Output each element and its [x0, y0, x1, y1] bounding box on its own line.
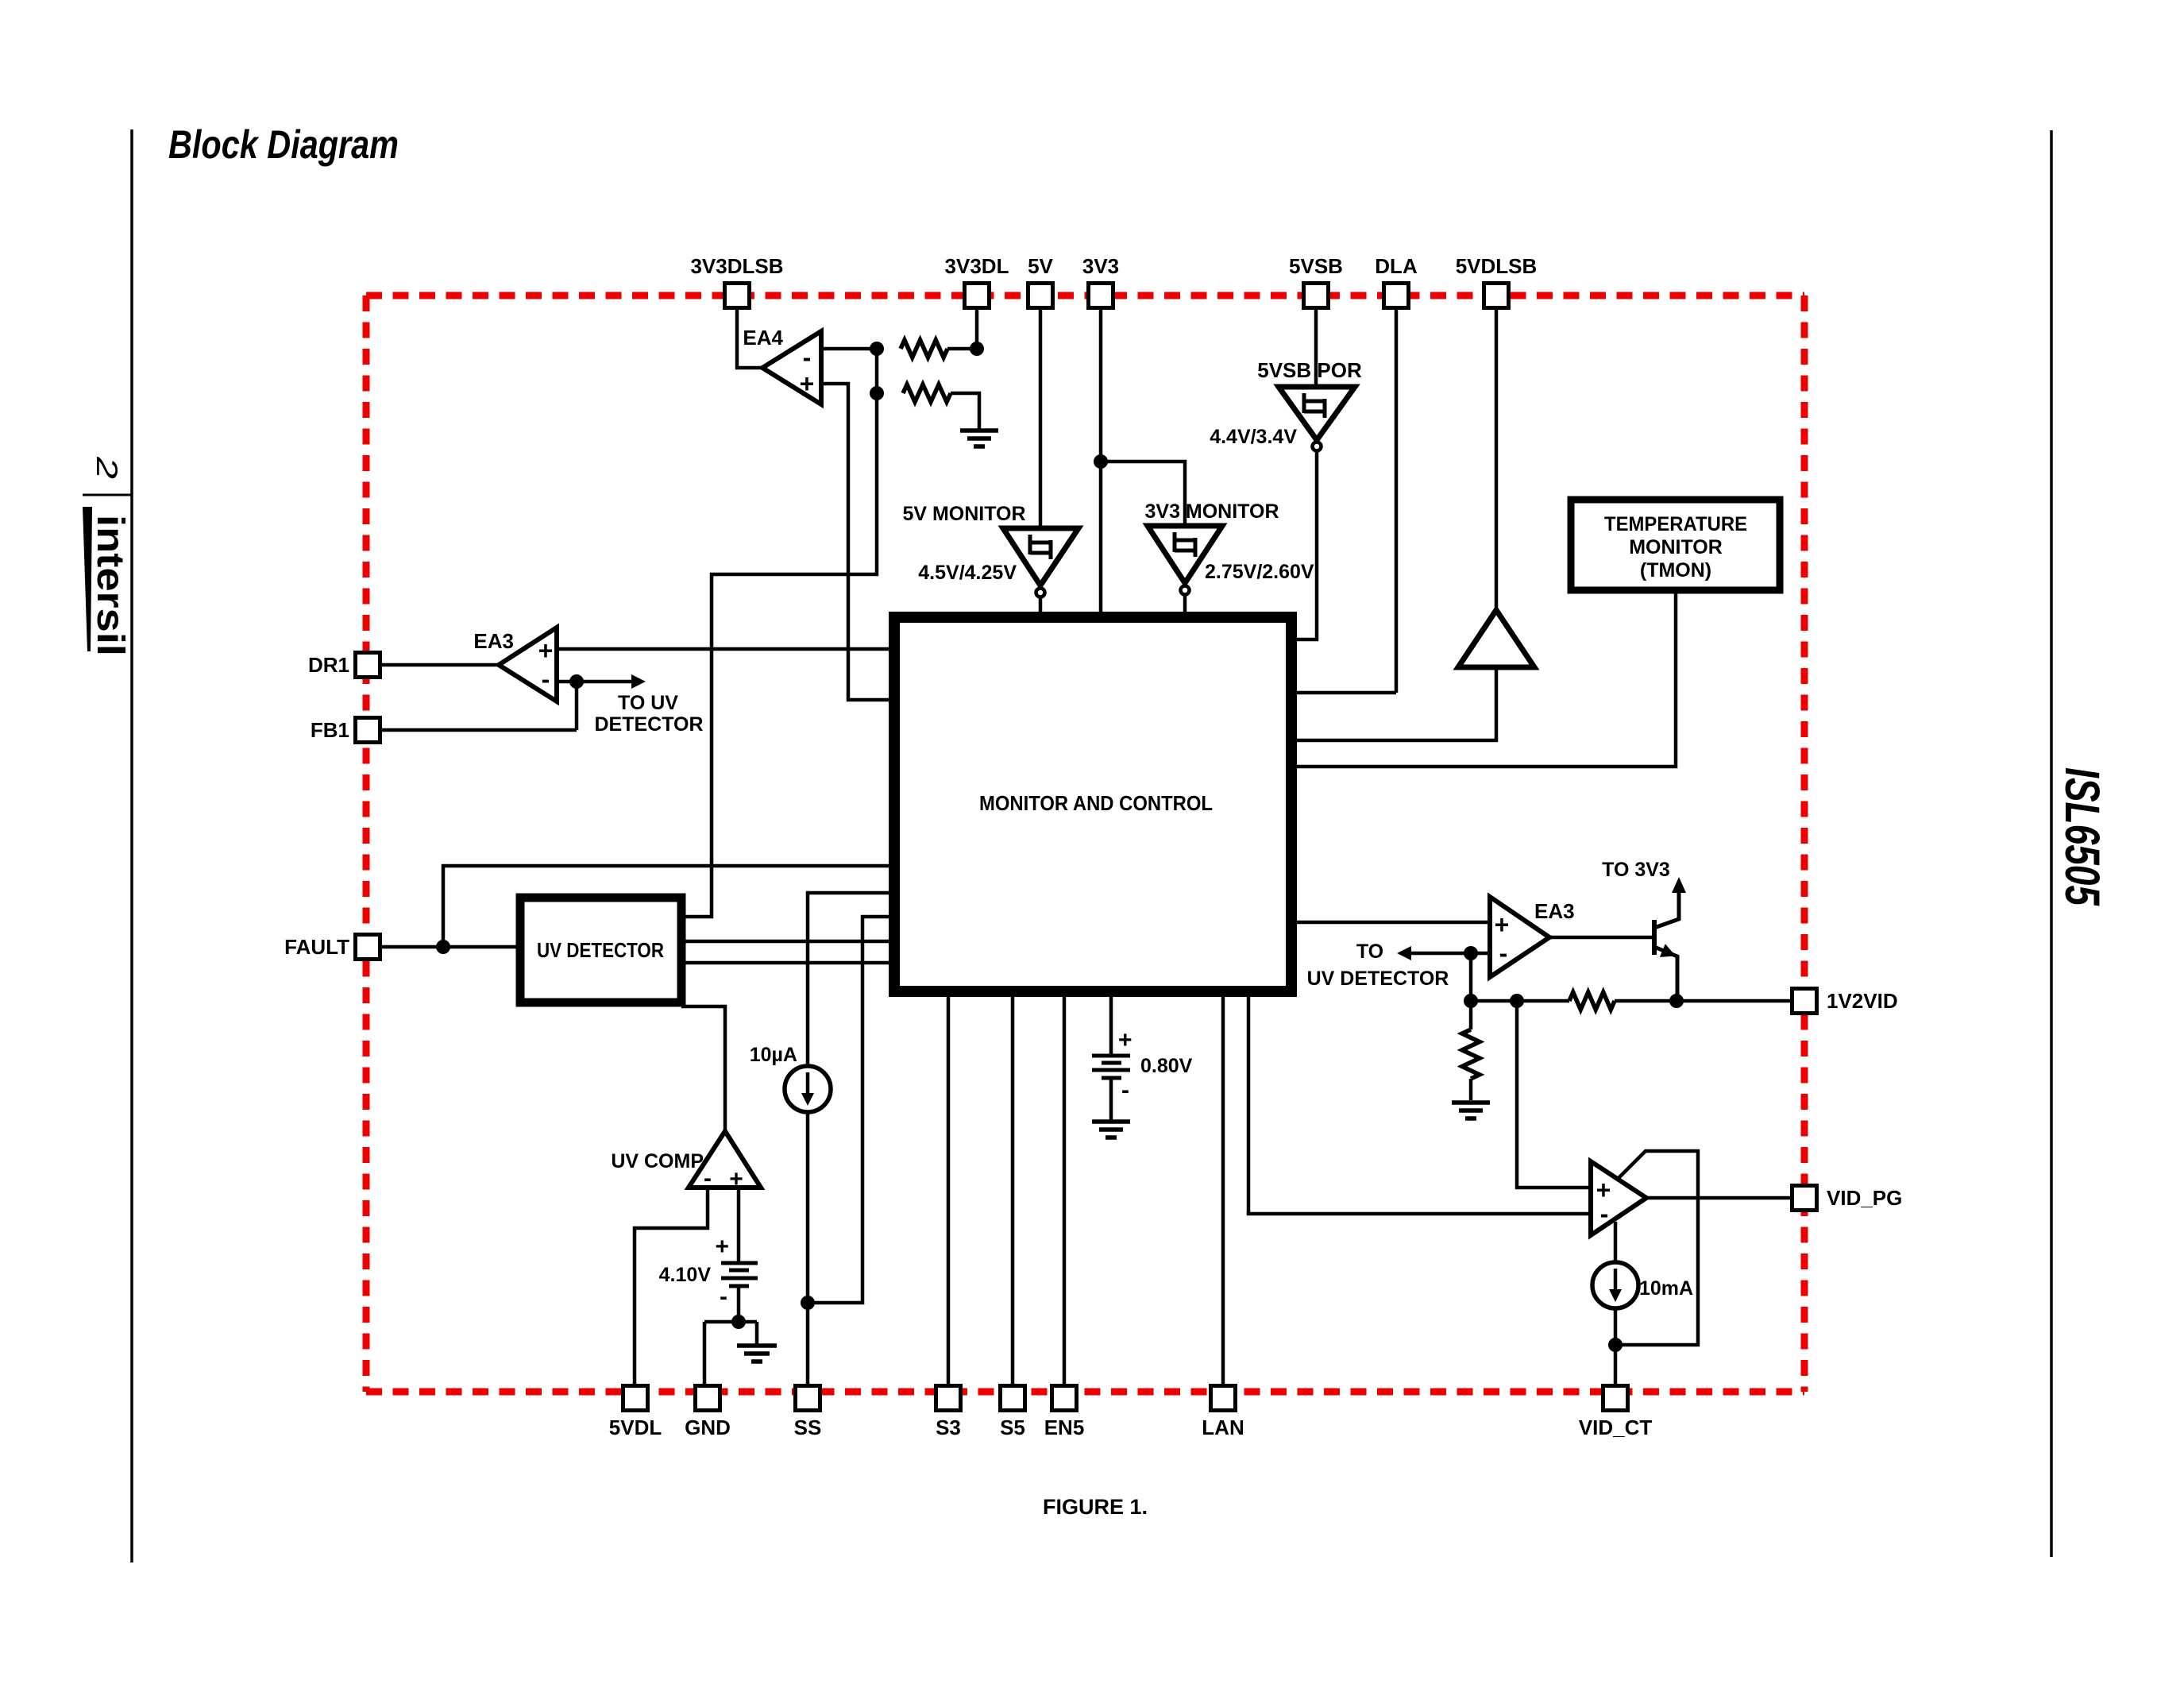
svg-text:5V MONITOR: 5V MONITOR [902, 503, 1025, 525]
svg-text:5VDL: 5VDL [609, 1416, 662, 1439]
svg-text:EA3: EA3 [1534, 899, 1575, 923]
svg-text:GND: GND [685, 1416, 731, 1439]
svg-text:4.4V/3.4V: 4.4V/3.4V [1210, 426, 1297, 448]
svg-text:5V: 5V [1028, 254, 1053, 278]
svg-text:-: - [704, 1165, 712, 1192]
svg-text:4.10V: 4.10V [659, 1264, 712, 1286]
svg-text:intersil: intersil [89, 515, 131, 656]
svg-text:4.5V/4.25V: 4.5V/4.25V [918, 562, 1017, 584]
svg-text:-: - [803, 343, 812, 372]
svg-text:FAULT: FAULT [284, 935, 349, 959]
svg-text:10mA: 10mA [1639, 1277, 1693, 1300]
svg-text:MONITOR AND CONTROL: MONITOR AND CONTROL [979, 791, 1213, 815]
svg-text:DETECTOR: DETECTOR [594, 713, 703, 736]
svg-text:+: + [715, 1234, 729, 1260]
svg-text:UV DETECTOR: UV DETECTOR [537, 938, 664, 962]
svg-text:UV DETECTOR: UV DETECTOR [1307, 968, 1449, 990]
svg-text:10µA: 10µA [750, 1044, 797, 1066]
svg-text:+: + [800, 369, 815, 398]
svg-text:VID_PG: VID_PG [1827, 1186, 1902, 1210]
svg-text:SS: SS [794, 1416, 822, 1439]
svg-text:EN5: EN5 [1044, 1416, 1085, 1439]
svg-text:-: - [1121, 1077, 1129, 1103]
svg-text:3V3 MONITOR: 3V3 MONITOR [1144, 500, 1279, 523]
svg-text:Block Diagram: Block Diagram [168, 122, 399, 167]
svg-text:2: 2 [91, 456, 123, 479]
svg-text:+: + [538, 636, 554, 665]
svg-text:TO: TO [1356, 941, 1383, 963]
svg-text:+: + [1495, 910, 1510, 939]
svg-text:TO UV: TO UV [618, 692, 678, 714]
svg-text:LAN: LAN [1202, 1416, 1244, 1439]
svg-text:(TMON): (TMON) [1640, 559, 1711, 581]
svg-text:UV COMP: UV COMP [611, 1150, 704, 1172]
svg-text:FIGURE 1.: FIGURE 1. [1043, 1495, 1148, 1519]
svg-text:5VSB: 5VSB [1289, 254, 1343, 278]
svg-text:3V3: 3V3 [1082, 254, 1119, 278]
svg-text:5VDLSB: 5VDLSB [1456, 254, 1538, 278]
svg-text:FB1: FB1 [311, 718, 349, 742]
svg-text:VID_CT: VID_CT [1579, 1416, 1653, 1439]
svg-text:TEMPERATURE: TEMPERATURE [1604, 513, 1747, 535]
svg-text:2.75V/2.60V: 2.75V/2.60V [1205, 561, 1314, 583]
svg-text:3V3DLSB: 3V3DLSB [690, 254, 783, 278]
svg-text:+: + [1118, 1027, 1133, 1053]
svg-text:EA3: EA3 [473, 629, 514, 653]
svg-text:MONITOR: MONITOR [1629, 536, 1723, 558]
svg-text:+: + [729, 1166, 743, 1192]
svg-text:3V3DL: 3V3DL [945, 254, 1009, 278]
svg-text:DR1: DR1 [308, 653, 349, 677]
svg-text:-: - [542, 665, 550, 693]
svg-text:S3: S3 [936, 1416, 961, 1439]
svg-text:-: - [1499, 939, 1508, 968]
svg-text:-: - [720, 1284, 727, 1310]
svg-text:EA4: EA4 [743, 326, 783, 350]
svg-text:-: - [1600, 1199, 1609, 1228]
svg-text:5VSB POR: 5VSB POR [1257, 358, 1362, 382]
svg-text:TO 3V3: TO 3V3 [1602, 859, 1670, 881]
svg-text:1V2VID: 1V2VID [1827, 989, 1898, 1013]
svg-text:0.80V: 0.80V [1140, 1055, 1193, 1077]
svg-text:DLA: DLA [1375, 254, 1418, 278]
svg-text:ISL6505: ISL6505 [2055, 767, 2109, 906]
svg-text:S5: S5 [1000, 1416, 1025, 1439]
